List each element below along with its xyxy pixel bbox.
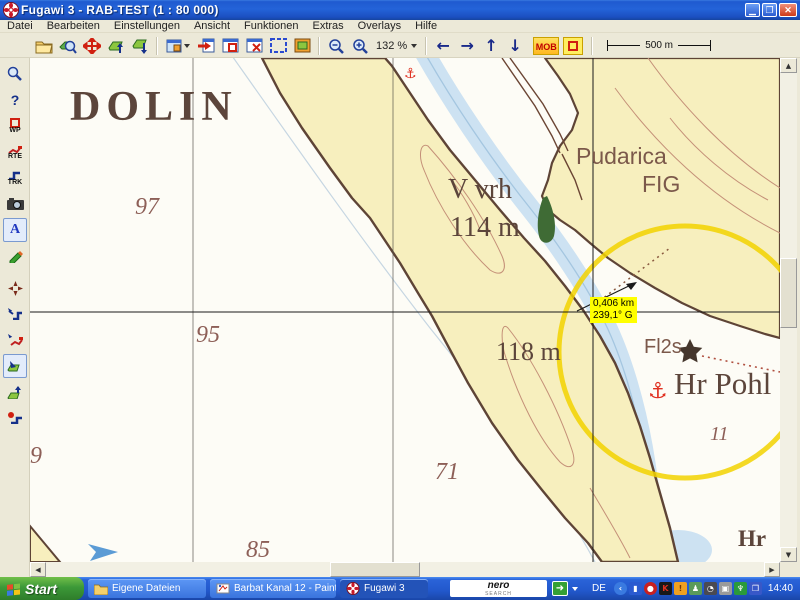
title-bar: Fugawi 3 - RAB-TEST (1 : 80 000) ▁ ❐ ✕ (0, 0, 800, 20)
window-frame-button[interactable] (266, 35, 290, 57)
label-depth-85: 85 (246, 537, 270, 562)
measure-bearing: 239,1° G (593, 310, 634, 322)
open-map-button[interactable] (32, 35, 56, 57)
tray-security-alert-icon[interactable]: ! (674, 582, 687, 595)
nero-logo: nero (450, 582, 547, 590)
menu-overlays[interactable]: Overlays (351, 20, 408, 33)
label-depth-95: 95 (196, 322, 220, 348)
new-window-button[interactable] (162, 35, 194, 57)
system-tray: ‹ ▮ ● K ! ♟ ◔ ▣ ♆ ❒ (614, 582, 762, 595)
menu-datei[interactable]: Datei (0, 20, 40, 33)
menu-hilfe[interactable]: Hilfe (408, 20, 444, 33)
help-tool-button[interactable]: ? (3, 88, 27, 112)
tray-kaspersky-icon[interactable]: K (659, 582, 672, 595)
tray-update-icon[interactable]: ◔ (704, 582, 717, 595)
app-icon (3, 2, 19, 18)
desktop: Fugawi 3 - RAB-TEST (1 : 80 000) ▁ ❐ ✕ D… (0, 0, 800, 600)
close-button[interactable]: ✕ (779, 3, 797, 17)
label-fig: FIG (642, 171, 680, 197)
label-depth-9: 9 (30, 443, 42, 469)
nero-go-button[interactable]: ➜ (552, 581, 568, 596)
minimize-button[interactable]: ▁ (745, 3, 760, 17)
fugawi-icon (346, 582, 360, 595)
active-track-button[interactable] (3, 406, 27, 430)
goto-route-button[interactable] (3, 328, 27, 352)
zoom-level-combo[interactable]: 132 % (372, 40, 421, 52)
tool-palette: ? WP RTE TRK A (0, 58, 30, 577)
label-depth-11: 11 (710, 423, 729, 445)
scroll-down-arrow[interactable]: ▼ (780, 547, 797, 562)
mob-button[interactable]: MOB (533, 37, 559, 55)
map-overview-button[interactable] (290, 35, 314, 57)
horizontal-scrollbar[interactable]: ◀ ▶ (30, 562, 780, 577)
menu-ansicht[interactable]: Ansicht (187, 20, 237, 33)
windows-flag-icon (6, 582, 21, 596)
route-tool-button[interactable]: RTE (3, 140, 27, 164)
scroll-up-arrow[interactable]: ▲ (780, 58, 797, 73)
toolbar: 132 % ← → ↑ ↓ MOB 500 m (0, 34, 800, 58)
start-button[interactable]: Start (0, 577, 84, 600)
measure-distance: 0,406 km (593, 298, 634, 310)
scrollbar-corner (780, 562, 800, 577)
zoom-tool-button[interactable] (3, 62, 27, 86)
taskbar: Start Eigene Dateien Barbat Kanal 12 - P… (0, 577, 800, 600)
vertical-scrollbar[interactable]: ▲ ▼ (780, 58, 797, 562)
scale-bar: 500 m (607, 40, 711, 51)
chart-canvas[interactable]: ⚓ ⚓ DOLIN 97 95 71 85 9 11 V vrh 114 m 1… (30, 58, 780, 562)
zoom-level-value: 132 % (376, 40, 407, 52)
menu-bar: Datei Bearbeiten Einstellungen Ansicht F… (0, 20, 800, 33)
label-pudarica: Pudarica (576, 143, 667, 169)
nero-search-box[interactable]: nero SEARCH (450, 580, 547, 597)
camera-tool-button[interactable] (3, 192, 27, 216)
tray-user-icon[interactable]: ♟ (689, 582, 702, 595)
vertical-scroll-thumb[interactable] (780, 258, 797, 328)
label-depth-97: 97 (135, 194, 160, 220)
map-zoom-in-layer-button[interactable] (104, 35, 128, 57)
tray-network-icon[interactable]: ▣ (719, 582, 732, 595)
tray-messenger-icon[interactable]: ▮ (629, 582, 642, 595)
goto-track-button[interactable] (3, 302, 27, 326)
nero-logo-sub: SEARCH (450, 590, 547, 598)
map-scale-down-button[interactable] (3, 354, 27, 378)
label-harbor-small: Hr (738, 526, 766, 551)
menu-extras[interactable]: Extras (305, 20, 350, 33)
selection-box-button[interactable] (563, 37, 583, 55)
window-title: Fugawi 3 - RAB-TEST (1 : 80 000) (21, 3, 219, 17)
pan-tool-button[interactable] (80, 35, 104, 57)
track-tool-button[interactable]: TRK (3, 166, 27, 190)
menu-bearbeiten[interactable]: Bearbeiten (40, 20, 107, 33)
label-elev-118: 118 m (496, 337, 561, 366)
pan-down-button[interactable]: ↓ (503, 35, 527, 57)
scroll-left-arrow[interactable]: ◀ (30, 562, 46, 577)
restore-button[interactable]: ❐ (762, 3, 777, 17)
label-light-char: Fl2s (644, 336, 682, 358)
scale-label: 500 m (640, 40, 678, 51)
folder-icon (94, 582, 108, 595)
zoom-in-button[interactable] (348, 35, 372, 57)
paint-icon (216, 582, 230, 595)
red-square-icon (568, 41, 578, 51)
start-label: Start (25, 581, 57, 597)
waypoint-tool-button[interactable]: WP (3, 114, 27, 138)
scroll-right-arrow[interactable]: ▶ (764, 562, 780, 577)
anchor-icon-harbor: ⚓ (648, 379, 668, 404)
map-search-button[interactable] (56, 35, 80, 57)
pan-right-button[interactable]: → (455, 35, 479, 57)
window-arrange-button[interactable] (194, 35, 218, 57)
task-paint[interactable]: Barbat Kanal 12 - Paint (210, 579, 336, 598)
annotate-tool-button[interactable]: A (3, 218, 27, 242)
window-delete-button[interactable] (242, 35, 266, 57)
zoom-dropdown-caret (411, 44, 417, 48)
hide-icons-chevron[interactable]: ‹ (614, 582, 627, 595)
tray-display-icon[interactable]: ❒ (749, 582, 762, 595)
zoom-out-button[interactable] (324, 35, 348, 57)
window-close-view-button[interactable] (218, 35, 242, 57)
map-scale-up-button[interactable] (3, 380, 27, 404)
task-fugawi[interactable]: Fugawi 3 (340, 579, 428, 598)
goto-position-button[interactable] (3, 276, 27, 300)
label-peak-name: V vrh (448, 174, 512, 205)
menu-funktionen[interactable]: Funktionen (237, 20, 305, 33)
language-indicator[interactable]: DE (592, 583, 606, 594)
tray-antivirus-icon[interactable]: ● (644, 582, 657, 595)
label-depth-71: 71 (435, 459, 459, 485)
nautical-chart: ⚓ ⚓ DOLIN 97 95 71 85 9 11 V vrh 114 m 1… (30, 58, 780, 562)
label-region: DOLIN (70, 84, 238, 130)
task-eigene-dateien[interactable]: Eigene Dateien (88, 579, 206, 598)
pan-up-button[interactable]: ↑ (479, 35, 503, 57)
label-peak-elev: 114 m (450, 212, 520, 243)
horizontal-scroll-thumb[interactable] (330, 562, 420, 577)
label-harbor: Hr Pohl (674, 366, 771, 401)
taskbar-clock: 14:40 (768, 583, 793, 594)
measure-tooltip: 0,406 km 239,1° G (590, 297, 637, 323)
draw-tool-button[interactable] (3, 244, 27, 268)
deskband-caret[interactable] (572, 587, 578, 591)
pan-left-button[interactable]: ← (431, 35, 455, 57)
menu-einstellungen[interactable]: Einstellungen (107, 20, 187, 33)
tray-wireless-icon[interactable]: ♆ (734, 582, 747, 595)
map-zoom-out-layer-button[interactable] (128, 35, 152, 57)
anchor-icon-north: ⚓ (404, 66, 417, 82)
